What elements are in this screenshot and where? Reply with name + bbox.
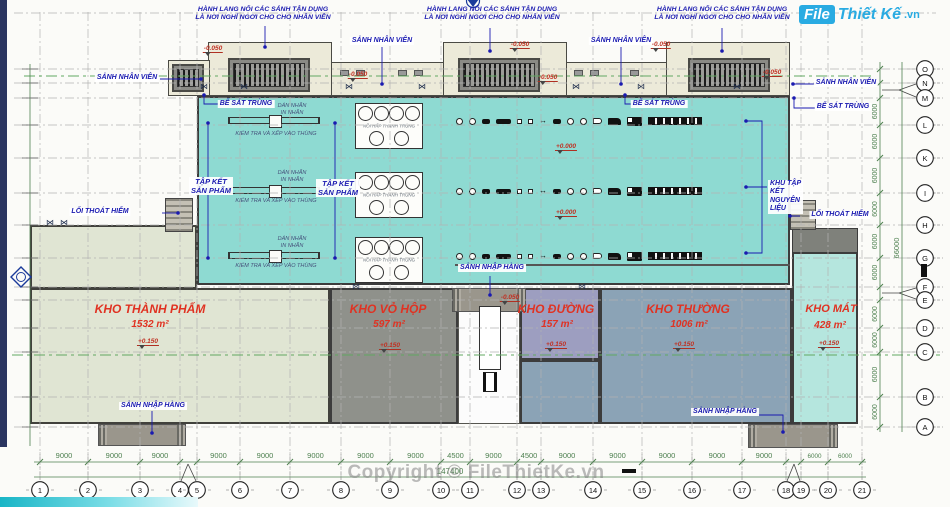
- equipment-box-glyph: [627, 252, 642, 261]
- grid-column-bubble: 9: [376, 482, 404, 499]
- retort-label: NỒI HẤP THANH TRÙNG: [363, 258, 415, 263]
- bottom-dimension-label: 4500: [521, 451, 538, 460]
- equipment-long-glyph: [648, 187, 702, 195]
- side-dimension-label: 6000: [872, 134, 879, 150]
- grid-row-bubble: L: [907, 117, 943, 134]
- side-dimension-label: 6000: [872, 265, 879, 281]
- grid-column-bubble: 17: [728, 482, 756, 499]
- equipment-blob-glyph: [482, 189, 490, 194]
- label-kiem-tra-2: KIỂM TRA VÀ XẾP VÀO THÙNG: [235, 198, 316, 205]
- door-swing-icon: ⋈: [352, 283, 360, 291]
- kho-mat-roof-band: [792, 228, 858, 254]
- grid-column-bubble: 19: [787, 482, 815, 499]
- retort-block-2: NỒI HẤP THANH TRÙNG: [355, 172, 423, 218]
- equipment-tail-glyph: [593, 253, 602, 259]
- grid-column-bubble: 20: [814, 482, 842, 499]
- grid-row-bubble: D: [907, 320, 943, 337]
- left-border-strip: [0, 0, 7, 447]
- label-sanh-nhap-hang-2: SẢNH NHẬP HÀNG: [119, 402, 187, 410]
- door-swing-icon: ⋈: [637, 83, 645, 91]
- svg-text:18: 18: [782, 486, 790, 495]
- equipment-c-glyph: [469, 188, 476, 195]
- label-tap-ket-san-pham-1: TẬP KẾT SẢN PHẨM: [189, 177, 233, 195]
- svg-text:3: 3: [138, 486, 142, 495]
- label-sanh-nhan-vien-4: SẢNH NHÂN VIÊN: [814, 79, 878, 87]
- door-swing-icon: ⋈: [345, 83, 353, 91]
- side-dimension-label: 6000: [872, 367, 879, 383]
- room-area-kho-mat: 428 m²: [814, 320, 846, 331]
- truck-trailer: [479, 306, 501, 370]
- equipment-c-glyph: [580, 188, 587, 195]
- label-dan-nhan-1: DÁN NHÃN IN NHÃN: [278, 103, 307, 117]
- svg-text:6: 6: [238, 486, 242, 495]
- equipment-sq-glyph: [517, 254, 522, 259]
- labeling-conveyor-2: [228, 187, 320, 194]
- equipment-sq-glyph: [517, 189, 522, 194]
- grid-row-bubble: E: [907, 292, 943, 309]
- bottom-dimension-label: 9000: [357, 451, 374, 460]
- label-line: DÁN NHÃN: [278, 236, 307, 243]
- label-line: SẢN PHẨM: [191, 186, 231, 195]
- retort-vessel-icon: [389, 240, 404, 255]
- svg-text:10: 10: [437, 486, 445, 495]
- retort-vessel-icon: [405, 240, 420, 255]
- svg-text:N: N: [922, 79, 927, 88]
- retort-vessel-icon: [369, 131, 384, 146]
- bottom-dimension-label: 9000: [307, 451, 324, 460]
- svg-text:5: 5: [195, 486, 199, 495]
- retort-label: NỒI HẤP THANH TRÙNG: [363, 193, 415, 198]
- elevation-mark: +0.000: [555, 209, 577, 217]
- label-sanh-nhan-vien-1: SẢNH NHÂN VIÊN: [95, 74, 159, 82]
- room-name-kho-vo-hop: KHO VỎ HỘP: [350, 302, 427, 316]
- svg-text:I: I: [924, 189, 926, 198]
- label-line: IN NHÃN: [278, 243, 307, 250]
- door-swing-icon: ⋈: [733, 83, 741, 91]
- label-line: IN NHÃN: [278, 110, 307, 117]
- grid-column-bubble: 21: [848, 482, 876, 499]
- svg-text:11: 11: [466, 486, 474, 495]
- equipment-c-glyph: [456, 118, 463, 125]
- bottom-dimension-label: 9000: [659, 451, 676, 460]
- equipment-blob-glyph: [553, 254, 561, 259]
- logo-file-box: File: [799, 5, 835, 24]
- room-kho-mat: [792, 252, 858, 424]
- grid-column-bubble: 8: [327, 482, 355, 499]
- grid-column-bubble: 13: [527, 482, 555, 499]
- room-area-kho-duong: 157 m²: [541, 319, 573, 330]
- equipment-c-glyph: [469, 253, 476, 260]
- elevation-mark: -0.050: [203, 45, 223, 53]
- corridor-note-1: HÀNH LANG NỐI CÁC SẢNH TẬN DỤNG LÀ NƠI N…: [193, 6, 332, 22]
- grid-column-bubble: 3: [126, 482, 154, 499]
- grid-row-bubble: K: [907, 150, 943, 167]
- retort-vessel-icon: [374, 106, 389, 121]
- retort-vessel-icon: [405, 175, 420, 190]
- logo[interactable]: FileThiết Kế.vn: [799, 5, 920, 24]
- label-be-sat-trung-1: BỂ SÁT TRÙNG: [218, 100, 275, 108]
- bottom-border-strip: [0, 497, 198, 507]
- equipment-c-glyph: [580, 253, 587, 260]
- grid-row-bubble: G: [907, 250, 943, 267]
- svg-text:E: E: [922, 296, 927, 305]
- bottom-dimension-label: 9000: [56, 451, 73, 460]
- grid-row-bubble: I: [907, 185, 943, 202]
- note-line: LÀ NƠI NGHỈ NGƠI CHO CHO NHÂN VIÊN: [424, 14, 559, 22]
- equipment-arr-glyph: ↔: [539, 117, 547, 125]
- note-line: LÀ NƠI NGHỈ NGƠI CHO CHO NHÂN VIÊN: [195, 14, 330, 22]
- grid-column-bubble: 2: [74, 482, 102, 499]
- elevation-mark: +0.150: [379, 342, 401, 350]
- room-area-kho-vo-hop: 597 m²: [373, 319, 405, 330]
- svg-text:15: 15: [638, 486, 646, 495]
- equipment-box-glyph: [627, 187, 642, 196]
- equipment-c-glyph: [456, 253, 463, 260]
- production-line-2: ↔: [456, 183, 746, 199]
- retort-vessel-icon: [358, 106, 373, 121]
- label-sanh-nhap-hang-3: SẢNH NHẬP HÀNG: [691, 408, 759, 416]
- grid-column-bubble: 10: [427, 482, 455, 499]
- svg-text:4: 4: [178, 486, 182, 495]
- equipment-blob-glyph: [482, 119, 490, 124]
- bench: [398, 70, 407, 76]
- production-line-1: ↔: [456, 113, 746, 129]
- retort-vessel-icon: [389, 175, 404, 190]
- equipment-c-glyph: [567, 118, 574, 125]
- label-kiem-tra-3: KIỂM TRA VÀ XẾP VÀO THÙNG: [235, 263, 316, 270]
- bench: [590, 70, 599, 76]
- equipment-blob-glyph: [553, 119, 561, 124]
- svg-text:M: M: [922, 94, 928, 103]
- retort-vessel-icon: [394, 265, 409, 280]
- bottom-dimension-label: 6000: [838, 453, 853, 460]
- bottom-dimension-label: 9000: [407, 451, 424, 460]
- retort-vessel-icon: [369, 200, 384, 215]
- svg-text:D: D: [922, 324, 928, 333]
- svg-text:L: L: [923, 121, 927, 130]
- label-sanh-nhap-hang-1: SẢNH NHẬP HÀNG: [458, 264, 526, 272]
- retort-vessel-icon: [394, 131, 409, 146]
- elevation-mark: -0.050: [762, 69, 782, 77]
- grid-row-bubble: C: [907, 344, 943, 361]
- grid-column-bubble: 14: [579, 482, 607, 499]
- svg-text:14: 14: [589, 486, 597, 495]
- label-loi-thoat-hiem-2: LỐI THOÁT HIỂM: [809, 211, 870, 219]
- retort-vessel-icon: [394, 200, 409, 215]
- svg-text:H: H: [922, 221, 927, 230]
- grid-row-bubble: B: [907, 389, 943, 406]
- equipment-arr-glyph: ↔: [539, 187, 547, 195]
- logo-word: Thiết Kế: [838, 6, 901, 24]
- retort-vessel-icon: [374, 240, 389, 255]
- grid-column-bubble: 18: [772, 482, 800, 499]
- side-dimension-label: 6000: [872, 201, 879, 217]
- grid-column-bubble: 1: [26, 482, 54, 499]
- equipment-c-glyph: [567, 188, 574, 195]
- bottom-dimension-label: 9000: [210, 451, 227, 460]
- retort-vessel-icon: [358, 175, 373, 190]
- watermark: Copyright © FileThietKe.vn: [347, 462, 604, 484]
- equipment-tail-glyph: [593, 118, 602, 124]
- corridor-note-3: HÀNH LANG NỐI CÁC SẢNH TẬN DỤNG LÀ NƠI N…: [652, 6, 791, 22]
- label-be-sat-trung-2: BỂ SÁT TRÙNG: [631, 100, 688, 108]
- bottom-dimension-label: 9000: [609, 451, 626, 460]
- door-swing-icon: ⋈: [418, 83, 426, 91]
- floor-plan: NỒI HẤP THANH TRÙNG NỒI HẤP THANH TRÙNG …: [0, 0, 950, 507]
- equipment-tail-glyph: [593, 188, 602, 194]
- door-swing-icon: ⋈: [46, 219, 54, 227]
- elevation-mark: -0.050: [538, 74, 558, 82]
- equipment-long-glyph: [648, 117, 702, 125]
- label-khu-tap-ket-nguyen-lieu: KHU TẬP KẾT NGUYÊN LIỆU: [768, 180, 803, 214]
- equipment-bar-glyph: [496, 254, 511, 259]
- svg-text:2: 2: [86, 486, 90, 495]
- svg-text:A: A: [922, 423, 927, 432]
- label-line: DÁN NHÃN: [278, 170, 307, 177]
- elevation-mark: +0.000: [555, 143, 577, 151]
- label-loi-thoat-hiem-1: LỐI THOÁT HIỂM: [69, 208, 130, 216]
- elevation-mark: -0.050: [651, 41, 671, 49]
- room-area-kho-thanh-pham: 1532 m²: [131, 319, 168, 330]
- grid-column-bubble: 6: [226, 482, 254, 499]
- equipment-arr-glyph: ↔: [539, 252, 547, 260]
- equipment-bar-glyph: [496, 119, 511, 124]
- svg-text:F: F: [923, 283, 928, 292]
- elevation-mark: +0.150: [818, 340, 840, 348]
- truck-cab: [483, 372, 497, 392]
- section-mark-icon: [11, 267, 31, 287]
- label-kiem-tra-1: KIỂM TRA VÀ XẾP VÀO THÙNG: [235, 131, 316, 138]
- retort-vessel-icon: [358, 240, 373, 255]
- labeling-conveyor-3: [228, 252, 320, 259]
- grid-column-bubble: 16: [678, 482, 706, 499]
- roller-door-3: [688, 58, 770, 92]
- loading-dock-right: [748, 424, 838, 448]
- label-line: LIỆU: [770, 205, 801, 213]
- equipment-box-glyph: [627, 117, 642, 126]
- label-tap-ket-san-pham-2: TẬP KẾT SẢN PHẨM: [316, 179, 360, 197]
- equipment-sq-glyph: [517, 119, 522, 124]
- side-dimension-label: 6000: [872, 234, 879, 250]
- svg-text:17: 17: [738, 486, 746, 495]
- side-dimension-label: 6000: [872, 168, 879, 184]
- retort-vessel-icon: [374, 175, 389, 190]
- label-line: NGUYÊN: [770, 197, 801, 205]
- equipment-sq-glyph: [528, 254, 533, 259]
- door-swing-icon: ⋈: [578, 283, 586, 291]
- equipment-c-glyph: [469, 118, 476, 125]
- svg-text:9: 9: [388, 486, 392, 495]
- label-line: SẢN PHẨM: [318, 188, 358, 197]
- grid-row-bubble: H: [907, 217, 943, 234]
- label-line: KẾT: [770, 188, 801, 196]
- grid-column-bubble: 5: [183, 482, 211, 499]
- leader-line: [794, 98, 815, 108]
- grid-column-bubble: 12: [503, 482, 531, 499]
- bottom-dimension-label: 9000: [485, 451, 502, 460]
- bottom-dimension-label: 9000: [257, 451, 274, 460]
- equipment-blob-glyph: [482, 254, 490, 259]
- retort-vessel-icon: [369, 265, 384, 280]
- loading-dock-left: [98, 424, 186, 446]
- label-line: DÁN NHÃN: [278, 103, 307, 110]
- equipment-fork-glyph: [608, 253, 621, 260]
- grid-column-bubble: 4: [166, 482, 194, 499]
- elevation-mark: +0.150: [137, 338, 159, 346]
- door-swing-icon: ⋈: [572, 83, 580, 91]
- retort-vessel-icon: [389, 106, 404, 121]
- side-dimension-label: 6000: [872, 306, 879, 322]
- equipment-c-glyph: [567, 253, 574, 260]
- bottom-dimension-label: 9000: [106, 451, 123, 460]
- grid-row-bubble: A: [907, 419, 943, 436]
- retort-block-3: NỒI HẤP THANH TRÙNG: [355, 237, 423, 283]
- svg-text:21: 21: [858, 486, 866, 495]
- room-name-kho-duong: KHO ĐƯỜNG: [518, 302, 594, 316]
- elevation-mark: -0.050: [348, 71, 368, 79]
- label-dan-nhan-2: DÁN NHÃN IN NHÃN: [278, 170, 307, 184]
- door-swing-icon: ⋈: [60, 219, 68, 227]
- room-name-kho-thanh-pham: KHO THÀNH PHẨM: [95, 302, 206, 316]
- grid-column-bubble: 11: [456, 482, 484, 499]
- svg-text:7: 7: [288, 486, 292, 495]
- production-line-3: ↔: [456, 248, 746, 264]
- label-dan-nhan-3: DÁN NHÃN IN NHÃN: [278, 236, 307, 250]
- exit-vestibule-left: [165, 198, 193, 232]
- bottom-dimension-label: 9000: [559, 451, 576, 460]
- bottom-dimension-label: 6000: [807, 453, 822, 460]
- grid-row-bubble: M: [907, 90, 943, 107]
- side-dimension-label: 6000: [872, 404, 879, 420]
- room-name-kho-thuong: KHO THƯỜNG: [646, 302, 730, 316]
- bottom-dimension-label: 9000: [709, 451, 726, 460]
- equipment-c-glyph: [580, 118, 587, 125]
- side-dimension-label: 6000: [872, 104, 879, 120]
- retort-label: NỒI HẤP THANH TRÙNG: [363, 124, 415, 129]
- equipment-sq-glyph: [528, 189, 533, 194]
- retort-vessel-icon: [405, 106, 420, 121]
- bottom-dimension-label: 9000: [152, 451, 169, 460]
- bottom-dimension-label: 4500: [447, 451, 464, 460]
- note-line: LÀ NƠI NGHỈ NGƠI CHO CHO NHÂN VIÊN: [654, 14, 789, 22]
- elevation-mark: +0.150: [673, 341, 695, 349]
- elevation-mark: -0.050: [500, 294, 520, 302]
- side-total-dimension: 66000: [892, 238, 901, 259]
- svg-text:1: 1: [38, 486, 42, 495]
- labeling-conveyor-1: [228, 117, 320, 124]
- svg-text:G: G: [922, 254, 928, 263]
- label-sanh-nhan-vien-2: SẢNH NHÂN VIÊN: [350, 37, 414, 45]
- label-line: IN NHÃN: [278, 177, 307, 184]
- equipment-blob-glyph: [553, 189, 561, 194]
- door-swing-icon: ⋈: [200, 83, 208, 91]
- svg-text:8: 8: [339, 486, 343, 495]
- side-dimension-label: 6000: [872, 332, 879, 348]
- bench: [630, 70, 639, 76]
- label-line: TẬP KẾT: [318, 179, 358, 188]
- note-line: HÀNH LANG NỐI CÁC SẢNH TẬN DỤNG: [424, 6, 559, 14]
- equipment-bar-glyph: [496, 189, 511, 194]
- svg-text:19: 19: [797, 486, 805, 495]
- grid-row-bubble: O: [907, 61, 943, 78]
- label-line: TẬP KẾT: [191, 177, 231, 186]
- elevation-mark: -0.050: [510, 41, 530, 49]
- label-sanh-nhan-vien-3: SẢNH NHÂN VIÊN: [589, 37, 653, 45]
- retort-block-1: NỒI HẤP THANH TRÙNG: [355, 103, 423, 149]
- equipment-fork-glyph: [608, 118, 621, 125]
- svg-text:K: K: [922, 154, 927, 163]
- room-name-kho-mat: KHO MÁT: [805, 303, 856, 315]
- grid-row-bubble: F: [907, 279, 943, 296]
- grid-row-bubble: N: [907, 75, 943, 92]
- equipment-c-glyph: [456, 188, 463, 195]
- bench: [414, 70, 423, 76]
- note-line: HÀNH LANG NỐI CÁC SẢNH TẬN DỤNG: [654, 6, 789, 14]
- svg-text:20: 20: [824, 486, 832, 495]
- door-swing-icon: ⋈: [240, 83, 248, 91]
- svg-text:16: 16: [688, 486, 696, 495]
- svg-text:12: 12: [513, 486, 521, 495]
- bench: [574, 70, 583, 76]
- room-kho-thuong-ext: [520, 360, 600, 424]
- equipment-long-glyph: [648, 252, 702, 260]
- elevation-mark: +0.150: [545, 341, 567, 349]
- label-be-sat-trung-3: BỂ SÁT TRÙNG: [815, 103, 872, 111]
- svg-text:C: C: [922, 348, 928, 357]
- svg-text:13: 13: [537, 486, 545, 495]
- room-area-kho-thuong: 1006 m²: [670, 319, 707, 330]
- equipment-sq-glyph: [528, 119, 533, 124]
- equipment-fork-glyph: [608, 188, 621, 195]
- left-wing: [30, 225, 197, 289]
- logo-tld: .vn: [904, 9, 920, 21]
- note-line: HÀNH LANG NỐI CÁC SẢNH TẬN DỤNG: [195, 6, 330, 14]
- svg-text:O: O: [922, 65, 928, 74]
- grid-column-bubble: 15: [628, 482, 656, 499]
- svg-text:B: B: [922, 393, 927, 402]
- bottom-dimension-label: 9000: [756, 451, 773, 460]
- corridor-note-2: HÀNH LANG NỐI CÁC SẢNH TẬN DỤNG LÀ NƠI N…: [422, 6, 561, 22]
- roller-door-2: [458, 58, 540, 92]
- grid-column-bubble: 7: [276, 482, 304, 499]
